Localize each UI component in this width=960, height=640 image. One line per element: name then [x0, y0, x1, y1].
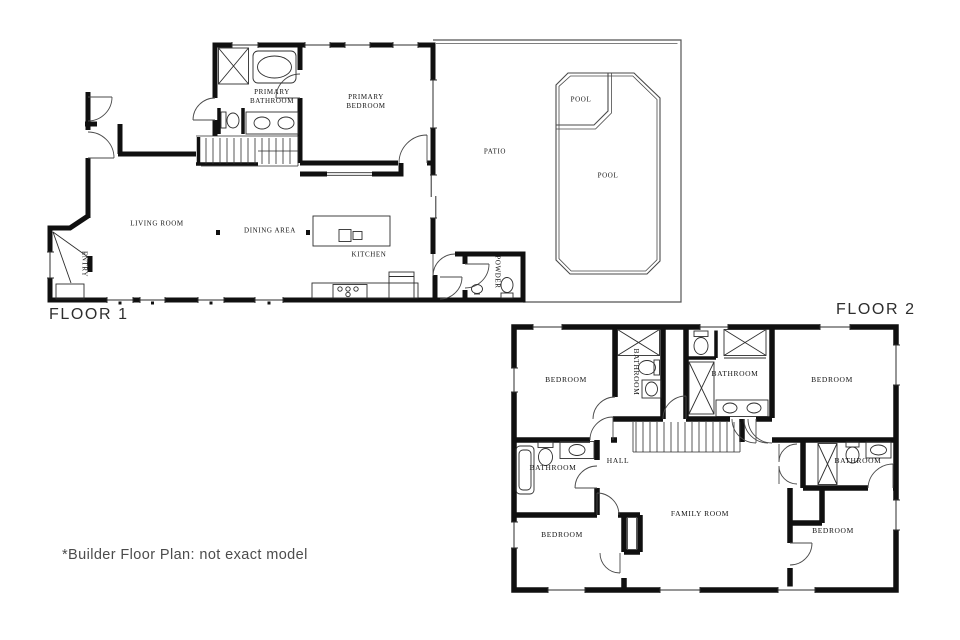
room-label-bathroom-right: BATHROOM [835, 456, 882, 466]
bathtub [253, 51, 296, 83]
floor2-closet-slider [628, 518, 637, 549]
shower [689, 362, 714, 414]
floor-plan-page: PRIMARY BATHROOM PRIMARY BEDROOM PATIO P… [0, 0, 960, 640]
floor2-title: FLOOR 2 [836, 301, 916, 319]
toilet [694, 331, 708, 355]
refrigerator [389, 272, 414, 298]
toilet [538, 442, 553, 466]
room-label-entry: ENTRY [79, 251, 88, 277]
floor1-stairs [196, 136, 298, 166]
vanity-double-sink [246, 112, 298, 134]
toilet [501, 278, 513, 299]
room-label-bathroom-top-middle: BATHROOM [712, 369, 759, 379]
room-label-powder: POWDER [492, 255, 501, 288]
toilet [639, 360, 660, 375]
floor2-stairs [633, 422, 740, 452]
floor1-patio-outline [433, 40, 681, 302]
kitchen-island [313, 216, 390, 246]
room-label-primary-bathroom: PRIMARY BATHROOM [243, 88, 301, 106]
room-label-kitchen: KITCHEN [352, 250, 387, 259]
room-label-primary-bedroom: PRIMARY BEDROOM [337, 93, 395, 111]
room-label-bathroom-left: BATHROOM [530, 463, 577, 473]
sink [560, 442, 594, 459]
sliding-door [430, 175, 438, 218]
room-label-hall: HALL [607, 456, 629, 466]
stove [333, 285, 367, 299]
room-label-family-room: FAMILY ROOM [671, 509, 729, 519]
room-label-bedroom-top-right: BEDROOM [811, 375, 853, 385]
linen-closet [724, 330, 766, 359]
room-label-bedroom-top-left: BEDROOM [545, 375, 587, 385]
disclaimer-footnote: *Builder Floor Plan: not exact model [62, 547, 308, 563]
room-label-bedroom-bottom-right: BEDROOM [812, 526, 854, 536]
floor2-minor-walls [687, 327, 716, 358]
room-label-patio: PATIO [484, 147, 506, 156]
floor-plan-drawing [0, 0, 960, 640]
floor1-walls [48, 43, 526, 303]
vanity-double-sink [716, 400, 768, 417]
kitchen-counter [312, 283, 418, 298]
room-label-pool-main: POOL [598, 171, 619, 180]
sink [642, 380, 661, 398]
floor1-plan [47, 40, 682, 305]
room-label-dining-area: DINING AREA [244, 226, 296, 235]
toilet [221, 112, 239, 128]
room-label-bedroom-bottom-left: BEDROOM [541, 530, 583, 540]
room-label-bathroom-rotated: BATHROOM [631, 349, 641, 396]
shower [219, 48, 249, 84]
floor1-wall-ticks [119, 230, 311, 305]
room-label-pool-upper: POOL [571, 95, 592, 104]
floor1-title: FLOOR 1 [49, 306, 129, 324]
room-label-living-room: LIVING ROOM [130, 219, 183, 228]
floor1-doors [88, 74, 489, 299]
sink [472, 285, 483, 295]
